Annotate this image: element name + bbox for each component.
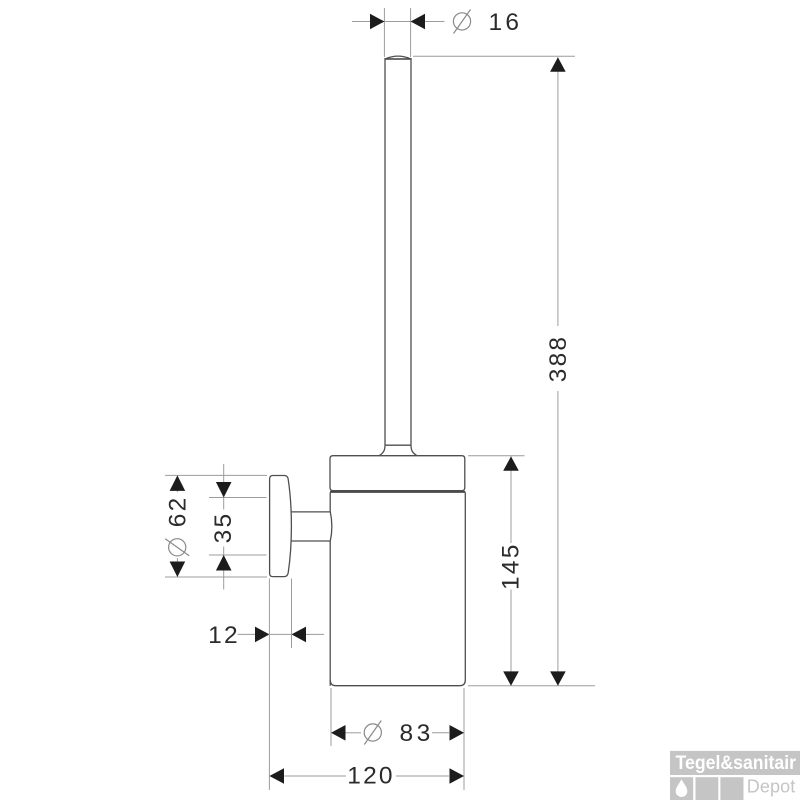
svg-text:145: 145 [498,542,525,589]
svg-text:120: 120 [347,763,394,790]
svg-text:Depot: Depot [747,776,796,796]
svg-text:Tegel&sanitair: Tegel&sanitair [676,752,797,774]
svg-text:388: 388 [545,335,572,382]
svg-text:83: 83 [400,720,434,747]
svg-text:62: 62 [165,496,192,528]
svg-text:16: 16 [489,9,523,36]
svg-text:35: 35 [210,512,237,544]
svg-text:12: 12 [208,622,240,649]
